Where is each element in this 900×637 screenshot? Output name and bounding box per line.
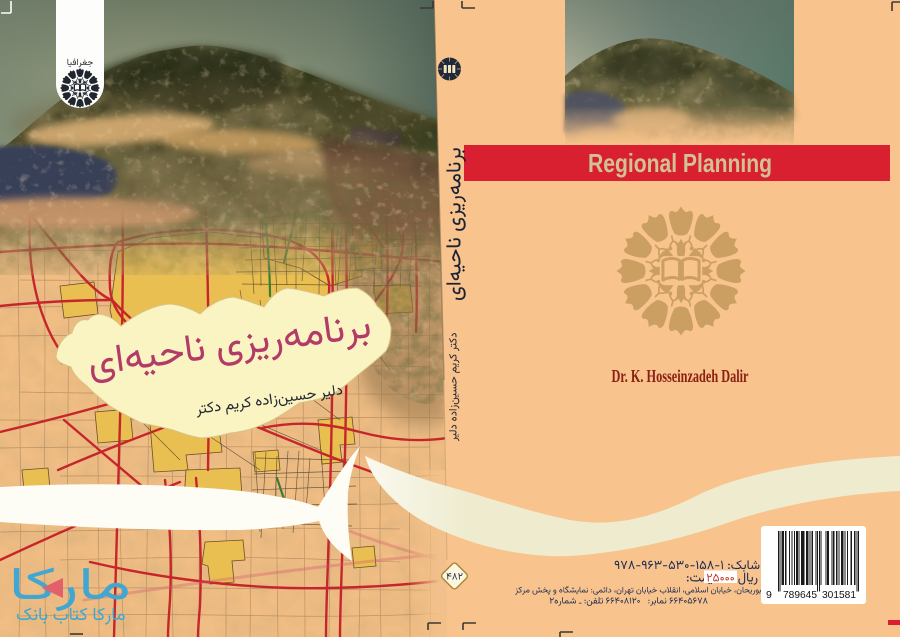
- svg-text:301581: 301581: [822, 589, 856, 601]
- svg-text:Dr. K. Hosseinzadeh Dalir: Dr. K. Hosseinzadeh Dalir: [612, 366, 749, 386]
- svg-text:Regional Planning: Regional Planning: [588, 148, 772, 178]
- svg-text:9: 9: [766, 589, 772, 601]
- svg-text:789645: 789645: [783, 589, 817, 601]
